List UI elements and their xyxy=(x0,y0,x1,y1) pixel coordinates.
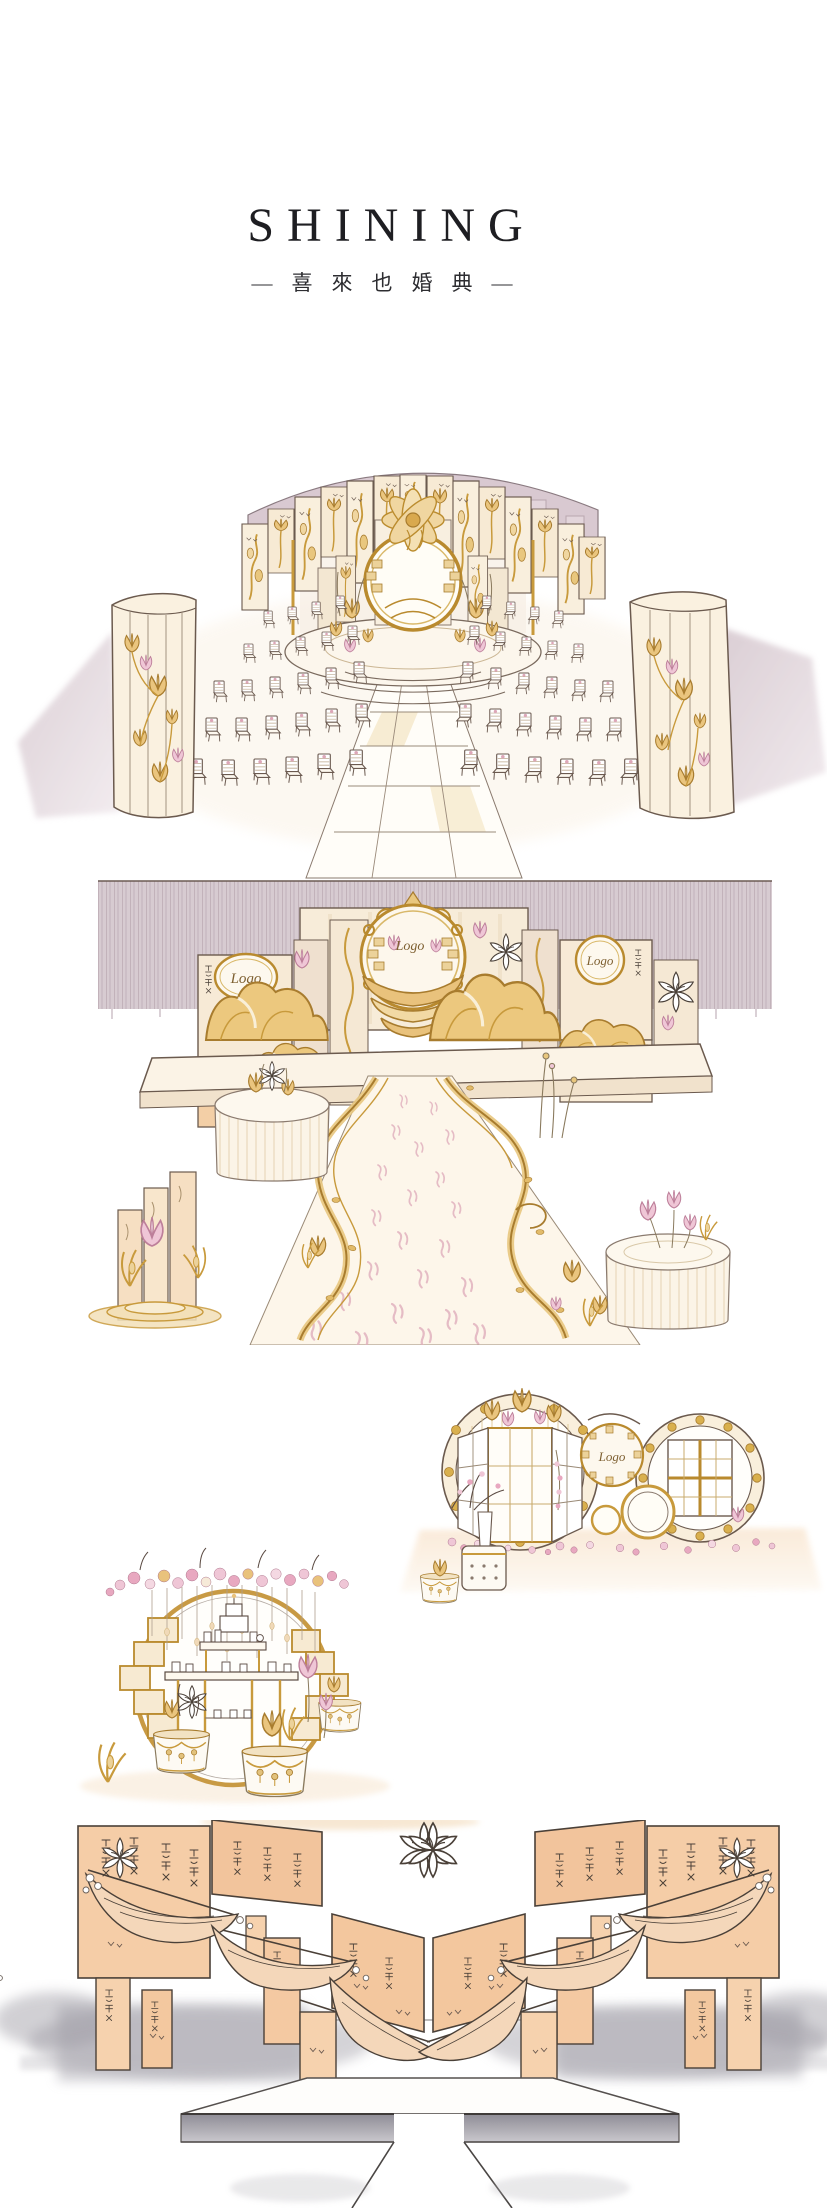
entrance-gateway-drawing xyxy=(0,1820,827,2208)
ceremony-perspective-drawing xyxy=(0,420,827,880)
giant-lotus-sculpture xyxy=(382,489,444,551)
ripple-base xyxy=(89,1302,221,1328)
floral-screen-right xyxy=(630,592,734,818)
scene-entrance-gateway xyxy=(0,1820,827,2208)
scene-ceremony-perspective xyxy=(0,420,827,880)
entrance-walkway xyxy=(230,2142,630,2208)
logo-medallion-signin: Logo xyxy=(598,1449,626,1464)
gate-cluster-right xyxy=(408,1820,827,2084)
logo-medallion-center: Logo xyxy=(395,939,425,954)
gate-cluster-left xyxy=(0,1820,449,2084)
vignettes-drawing: Logo xyxy=(0,1380,827,1820)
pillar-arrangement-left xyxy=(89,1172,221,1328)
brand-header: SHINING —喜來也婚典— xyxy=(0,198,805,297)
dessert-area xyxy=(99,1548,361,1797)
scene-stage-front: Logo Logo xyxy=(0,880,827,1345)
welcome-drums xyxy=(592,1486,674,1538)
screen-shadow-left xyxy=(18,632,120,818)
round-table-right xyxy=(606,1190,730,1329)
entrance-platform xyxy=(181,2078,679,2142)
left-ring xyxy=(442,1388,598,1550)
stage-front-drawing: Logo Logo xyxy=(0,880,827,1345)
open-lattice-window xyxy=(458,1428,582,1542)
poster-page: SHINING —喜來也婚典— xyxy=(0,0,827,2208)
logo-medallion-ring: Logo xyxy=(581,1424,643,1486)
cross-pane-window xyxy=(668,1440,732,1516)
scene-signin-and-dessert: Logo xyxy=(0,1380,827,1820)
floral-screen-left xyxy=(112,594,196,818)
logo-medallion-right: Logo xyxy=(586,953,614,968)
brand-subtitle: —喜來也婚典— xyxy=(0,267,805,297)
brand-title: SHINING xyxy=(0,198,805,253)
